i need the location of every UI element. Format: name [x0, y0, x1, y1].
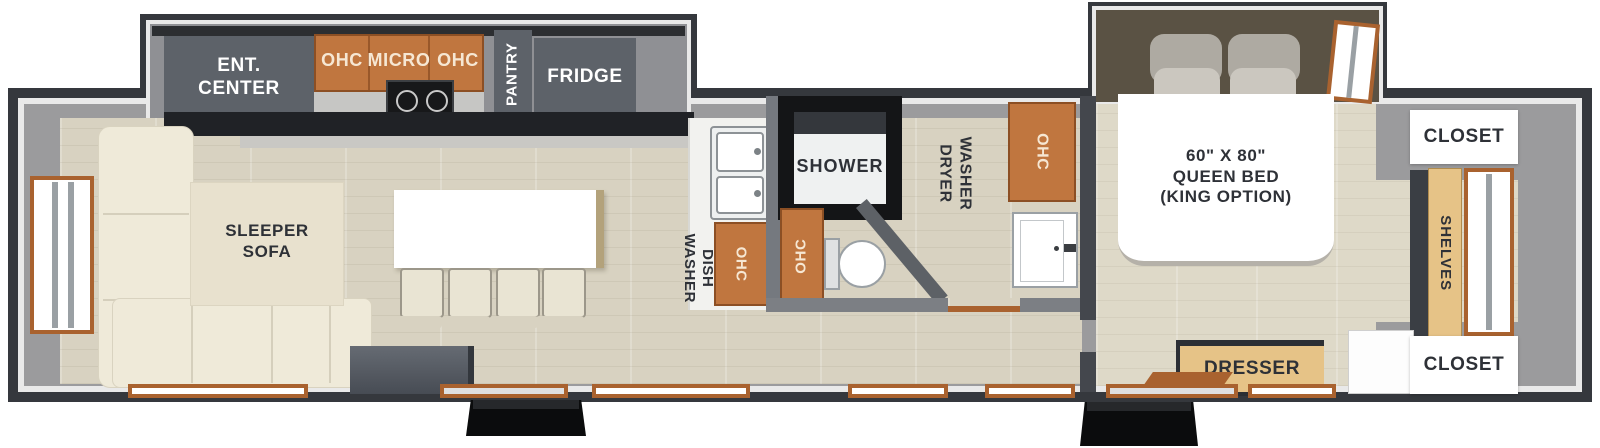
burner-icon — [396, 90, 418, 112]
bottom-window — [1248, 384, 1336, 398]
window-glass — [596, 388, 746, 394]
ohc-washer-label: OHC — [1032, 133, 1052, 170]
kitchen-counter-edge — [240, 136, 694, 148]
window-glass — [1252, 388, 1332, 394]
shower-shelf — [794, 112, 886, 134]
entry-door-bedroom — [1106, 384, 1238, 398]
bar-stool — [400, 268, 444, 318]
fridge: FRIDGE — [534, 38, 636, 116]
faucet-icon — [1064, 244, 1076, 252]
sofa-cushion-seam — [103, 213, 189, 215]
entertainment-center: ENT. CENTER — [164, 36, 314, 116]
shelves-label: SHELVES — [1436, 215, 1454, 291]
window-glass — [34, 180, 90, 330]
floorplan-canvas: ENT. CENTER OHC MICRO OHC PANTRY FRIDGE … — [0, 0, 1600, 448]
shower-label: SHOWER — [778, 156, 902, 178]
sleeper-sofa-seat — [112, 298, 372, 388]
stool-base — [394, 316, 442, 328]
bar-stool — [496, 268, 540, 318]
faucet-dot-icon — [1054, 246, 1059, 251]
sleeper-sofa-bed: SLEEPER SOFA — [190, 182, 344, 306]
stool-base — [536, 316, 584, 328]
stool-base — [442, 316, 490, 328]
bar-stool — [448, 268, 492, 318]
closet-bottom: CLOSET — [1410, 336, 1518, 394]
door-panel — [444, 388, 564, 394]
window-mullion — [68, 182, 74, 328]
step-lip — [473, 400, 579, 409]
toilet-bowl — [838, 240, 886, 288]
window-glass — [852, 388, 944, 394]
closet-bottom-label: CLOSET — [1410, 336, 1518, 376]
sleeper-sofa-label: SLEEPER SOFA — [191, 183, 343, 262]
closet-top: CLOSET — [1410, 110, 1518, 164]
rear-wall-window — [1464, 168, 1514, 336]
ohc-kitchen-label: OHC — [732, 246, 750, 281]
closet-top-label: CLOSET — [1410, 110, 1518, 148]
sink-inner — [1020, 220, 1064, 282]
burner-icon — [426, 90, 448, 112]
sofa-cushion-seam — [329, 303, 331, 383]
entry-step-bedroom — [1080, 402, 1198, 446]
bottom-window — [592, 384, 750, 398]
bedroom-wall-upper — [1080, 96, 1096, 320]
bottom-window — [128, 384, 308, 398]
window-mullion — [52, 182, 58, 328]
bathroom-sink — [1012, 212, 1078, 288]
washer-dryer-label-wrap: WASHER DRYER — [900, 118, 1010, 230]
left-wall-window — [30, 176, 94, 334]
window-glass — [989, 388, 1071, 394]
step-lip — [1087, 402, 1191, 411]
queen-bed-label: 60" X 80" QUEEN BED (KING OPTION) — [1118, 146, 1334, 208]
corner-cabinet — [1348, 330, 1414, 394]
door-panel — [1110, 388, 1234, 394]
entry-door-main — [440, 384, 568, 398]
sofa-cushion-seam — [271, 303, 273, 383]
bar-stool — [542, 268, 586, 318]
faucet-icon — [754, 148, 761, 155]
kitchen-double-sink — [710, 126, 772, 220]
washer-dryer-label: WASHER DRYER — [935, 137, 974, 211]
ohc-washer-label-wrap: OHC — [1007, 117, 1077, 187]
ohc-bath-label: OHC — [793, 238, 811, 273]
fridge-label: FRIDGE — [534, 38, 636, 88]
kitchen-counter-front — [164, 112, 694, 136]
bedroom-wall-lower — [1080, 352, 1096, 392]
faucet-icon — [754, 190, 761, 197]
bottom-window — [848, 384, 948, 398]
window-glass — [132, 388, 304, 394]
window-mullion — [1486, 174, 1492, 330]
bathroom-door-threshold — [948, 306, 1020, 312]
ohc-left-label: OHC — [314, 50, 370, 72]
sofa-cushion-seam — [191, 303, 193, 383]
entry-step-main — [466, 400, 586, 436]
bathroom-bottom-wall — [766, 298, 1096, 312]
pantry-label: PANTRY — [504, 42, 522, 106]
bottom-window — [985, 384, 1075, 398]
bed-slide-window — [1326, 20, 1380, 104]
micro-label: MICRO — [366, 50, 432, 72]
ent-center-label: ENT. CENTER — [164, 36, 314, 100]
stool-base — [490, 316, 538, 328]
kitchen-island — [394, 190, 604, 268]
